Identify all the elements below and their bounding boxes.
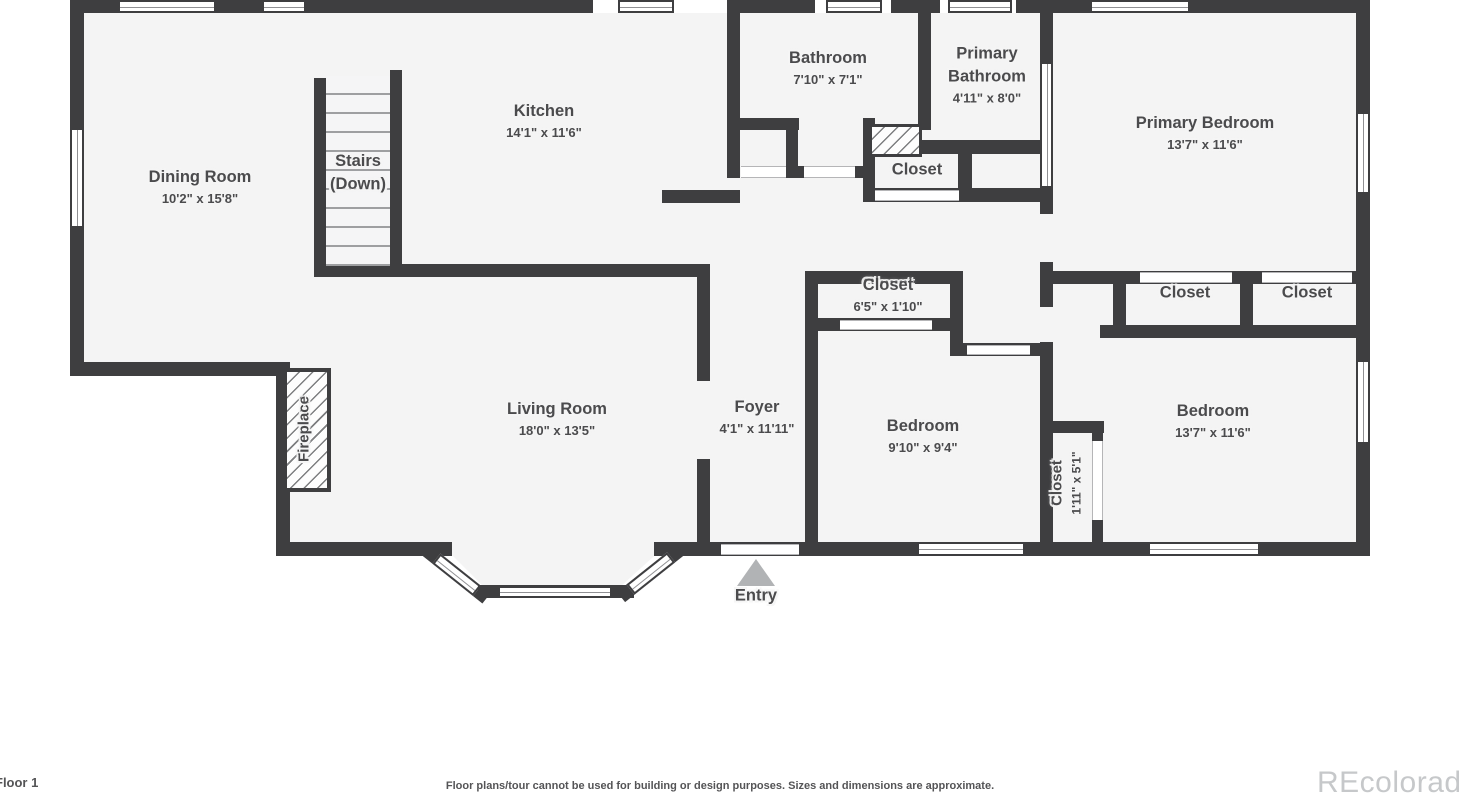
floor-plan: Dining Room 10'2" x 15'8" Kitchen 14'1" … <box>0 0 1459 800</box>
floor-number-label: Floor 1 <box>0 775 38 790</box>
door-opening <box>967 345 1030 355</box>
door-opening <box>875 190 959 201</box>
wall <box>70 362 290 376</box>
room-label-mid-closet: Closet 6'5" x 1'10" <box>853 274 922 316</box>
door-opening <box>804 166 855 178</box>
window <box>118 0 216 13</box>
room-label-hall-closet: Closet <box>892 158 942 181</box>
wall <box>662 190 740 203</box>
door-opening <box>741 166 786 178</box>
chimney-hatch <box>869 124 922 157</box>
room-label-living: Living Room 18'0" x 13'5" <box>507 398 607 440</box>
room-label-kitchen: Kitchen 14'1" x 11'6" <box>506 100 582 142</box>
room-label-stairs: Stairs (Down) <box>313 150 403 196</box>
window <box>498 586 612 598</box>
wall <box>697 264 710 381</box>
window <box>948 0 1012 13</box>
window <box>262 0 306 13</box>
wall <box>1040 342 1053 556</box>
room-label-foyer: Foyer 4'1" x 11'11" <box>720 396 795 438</box>
room-label-primary-bathroom: Primary Bathroom 4'11" x 8'0" <box>927 42 1047 107</box>
room-label-primary-closet-left: Closet <box>1160 281 1210 304</box>
window <box>1090 0 1190 13</box>
wall <box>1040 188 1053 214</box>
window <box>1356 360 1370 444</box>
door-opening <box>1092 441 1103 520</box>
entry-door-opening <box>721 544 799 555</box>
wall <box>786 166 804 178</box>
room-label-primary-bedroom: Primary Bedroom 13'7" x 11'6" <box>1136 112 1274 154</box>
wall <box>918 140 1040 154</box>
entry-arrow-icon <box>737 559 775 586</box>
wall <box>1092 421 1103 441</box>
recolorado-watermark: REcolorado <box>1317 766 1459 800</box>
window <box>1148 542 1260 556</box>
wall <box>950 271 963 356</box>
room-label-dining: Dining Room 10'2" x 15'8" <box>149 166 252 208</box>
wall <box>1040 262 1053 307</box>
wall <box>1100 325 1370 338</box>
window <box>826 0 882 13</box>
room-label-primary-closet-right: Closet <box>1282 281 1332 304</box>
wall <box>805 271 818 556</box>
disclaimer-text: Floor plans/tour cannot be used for buil… <box>446 780 994 792</box>
window <box>917 542 1025 556</box>
entry-label: Entry <box>735 584 777 607</box>
wall <box>1092 520 1103 556</box>
door-opening <box>840 320 932 330</box>
room-label-bathroom: Bathroom 7'10" x 7'1" <box>789 47 867 89</box>
wall <box>697 459 710 556</box>
window <box>70 128 84 228</box>
window <box>618 0 674 13</box>
room-label-small-closet: Closet 1'11" x 5'1" <box>1047 451 1086 514</box>
room-label-bedroom-right: Bedroom 13'7" x 11'6" <box>1175 400 1251 442</box>
window <box>1356 112 1370 194</box>
exterior-area <box>0 376 276 602</box>
wall <box>727 0 740 178</box>
fireplace-label: Fireplace <box>294 396 315 462</box>
room-label-bedroom-mid: Bedroom 9'10" x 9'4" <box>887 415 959 457</box>
